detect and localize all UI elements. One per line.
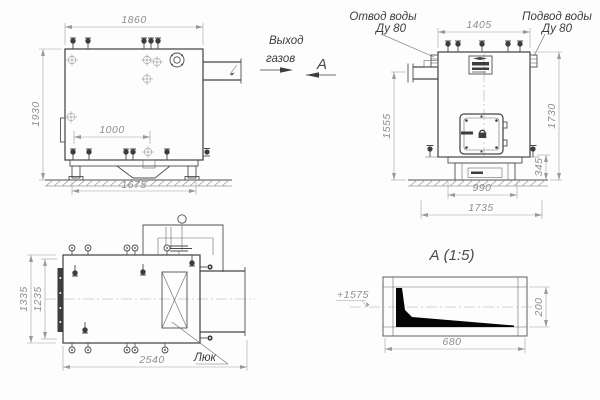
- dim-label: 1555: [381, 113, 393, 138]
- dim-1555: 1555: [381, 72, 406, 180]
- valve-icon: [86, 149, 92, 160]
- crosshair-mark-icon: [141, 54, 153, 66]
- dim-label: 200: [533, 297, 545, 317]
- nameplate: [469, 56, 492, 74]
- side-view: Отвод воды Ду 80 Подвод воды Ду 80: [349, 11, 592, 219]
- leader-line: [534, 34, 545, 56]
- wall-bracket: [61, 118, 66, 142]
- crosshair-mark-icon: [151, 56, 163, 68]
- view-direction-arrow-icon: [306, 72, 336, 77]
- valve-icon: [445, 41, 451, 52]
- valve-icon: [82, 322, 88, 333]
- flow-arrow-icon: [260, 67, 293, 72]
- valve-icon: [85, 245, 91, 255]
- dim-200: 200: [529, 287, 550, 327]
- valve-icon: [162, 343, 168, 353]
- crosshair-mark-icon: [66, 54, 78, 66]
- water-outlet-flange: [431, 55, 438, 67]
- hatch-label: Люк: [193, 352, 217, 364]
- view-a-marker: А: [306, 56, 336, 78]
- dim-label: 1860: [121, 14, 146, 26]
- valve-icon: [148, 38, 154, 49]
- valve-icon: [164, 149, 170, 160]
- outlet-pipe-top: [200, 267, 245, 336]
- dim-1000: 1000: [74, 124, 150, 144]
- crosshair-mark-icon: [142, 146, 154, 158]
- deposit-wedge: [396, 288, 514, 327]
- hinge-strip: [58, 268, 64, 332]
- valve-icon: [155, 38, 161, 49]
- lock-icon: [479, 130, 487, 138]
- water-outlet-label-line2: Ду 80: [374, 23, 407, 35]
- valve-icon: [130, 149, 136, 160]
- technical-drawing-sheet: 1860 1930 1000 1675 Выход газо: [0, 0, 600, 400]
- valve-icon: [189, 255, 195, 266]
- valve-icon: [69, 343, 75, 353]
- base-assembly: [448, 157, 522, 180]
- boiler-drawing: 1860 1930 1000 1675 Выход газо: [0, 0, 600, 400]
- dim-1930: 1930: [30, 49, 62, 180]
- dim-label: 2540: [138, 354, 164, 366]
- valve-icon: [164, 245, 170, 255]
- water-inlet-label-line1: Подвод воды: [522, 11, 592, 23]
- dim-label: 1675: [121, 179, 146, 191]
- water-inlet-label-line2: Ду 80: [540, 23, 573, 35]
- dim-label: 680: [442, 336, 461, 348]
- duct-structure: [143, 215, 223, 272]
- dim-label: 990: [472, 182, 491, 194]
- gas-outlet-label-line2: газов: [266, 53, 295, 65]
- dim-label: 1000: [99, 124, 124, 136]
- crosshair-mark-icon: [141, 73, 153, 85]
- valve-icon: [70, 38, 76, 49]
- valve-icon: [132, 343, 138, 353]
- dim-label: 1735: [468, 202, 493, 214]
- gas-outlet-label-line1: Выход: [269, 35, 304, 47]
- water-outlet-label-line1: Отвод воды: [349, 11, 417, 23]
- valve-icon: [141, 38, 147, 49]
- valve-icon: [70, 149, 76, 160]
- dim-2540: 2540: [63, 340, 247, 371]
- side-tap-icon: [200, 335, 213, 340]
- dim-1675: 1675: [72, 179, 196, 195]
- detail-a: А (1:5) +1575 200 680: [336, 247, 550, 353]
- gas-outlet-annotation: Выход газов: [260, 35, 304, 73]
- furnace-door: [460, 114, 507, 154]
- side-tap-icon: [203, 149, 210, 157]
- door-handle: [461, 132, 473, 135]
- support-frame: [69, 160, 199, 180]
- elevation-mark: +1575: [336, 289, 370, 307]
- valve-icon: [69, 245, 75, 255]
- elevation-label: +1575: [337, 289, 369, 301]
- detail-title: А (1:5): [428, 247, 474, 264]
- leader-line: [381, 34, 434, 57]
- dim-label: 1930: [30, 101, 42, 126]
- dim-label: 1730: [546, 103, 558, 128]
- valve-icon: [140, 264, 146, 275]
- valve-icon: [123, 149, 129, 160]
- hatch-rect: [162, 272, 187, 328]
- dim-1735: 1735: [421, 200, 542, 219]
- valve-icon: [85, 38, 91, 49]
- dim-label: 1235: [32, 286, 44, 311]
- crosshair-mark-icon: [65, 111, 77, 123]
- valve-icon: [124, 343, 130, 353]
- flange-icon: [170, 53, 184, 67]
- water-inlet-flange: [530, 55, 537, 67]
- drain-tap-icon: [425, 146, 448, 158]
- valve-icon: [505, 41, 511, 52]
- dim-label: 1335: [18, 286, 30, 311]
- view-letter: А: [316, 56, 327, 73]
- front-view: 1860 1930 1000 1675: [30, 14, 241, 195]
- gas-outlet-stub: [408, 61, 438, 83]
- gas-outlet-pipe: [203, 59, 241, 84]
- dim-label: 1405: [466, 19, 491, 31]
- valve-icon: [85, 343, 91, 353]
- valve-icon: [72, 265, 78, 276]
- gauge-icon: [178, 215, 186, 223]
- side-tap-icon: [200, 264, 213, 269]
- top-view: Люк: [18, 215, 255, 371]
- dim-345: 345: [533, 155, 550, 180]
- valve-icon: [455, 41, 461, 52]
- valve-icon: [132, 245, 138, 255]
- valve-icon: [479, 41, 485, 52]
- dim-label: 345: [533, 157, 545, 176]
- valve-icon: [517, 41, 523, 52]
- dim-990: 990: [448, 182, 517, 199]
- dim-680: 680: [385, 336, 525, 353]
- valve-icon: [124, 245, 130, 255]
